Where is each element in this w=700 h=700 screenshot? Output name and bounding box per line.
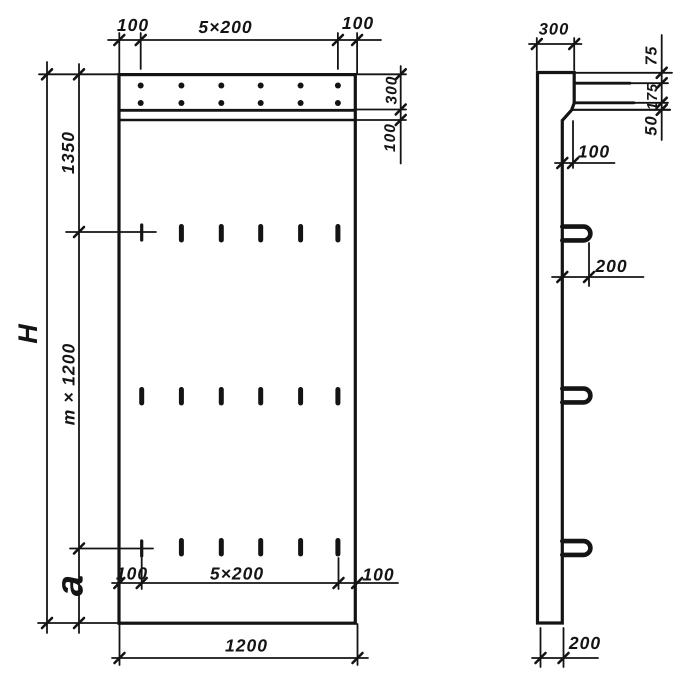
svg-text:175: 175: [645, 83, 661, 110]
svg-text:100: 100: [362, 565, 394, 585]
svg-text:5×200: 5×200: [210, 564, 264, 584]
svg-text:m × 1200: m × 1200: [59, 343, 79, 425]
svg-text:a: a: [49, 574, 91, 596]
svg-text:1200: 1200: [225, 636, 268, 656]
svg-text:100: 100: [116, 564, 148, 584]
svg-text:300: 300: [539, 21, 570, 39]
svg-text:300: 300: [383, 76, 400, 105]
svg-text:H: H: [13, 323, 43, 344]
svg-text:5×200: 5×200: [198, 17, 252, 37]
svg-text:75: 75: [644, 46, 661, 66]
svg-text:50: 50: [642, 115, 660, 135]
svg-text:100: 100: [342, 13, 374, 33]
svg-text:100: 100: [117, 15, 149, 35]
svg-text:1350: 1350: [58, 131, 78, 174]
svg-text:100: 100: [578, 142, 610, 162]
svg-text:200: 200: [568, 633, 601, 653]
svg-text:100: 100: [382, 123, 399, 152]
svg-text:200: 200: [594, 256, 627, 276]
